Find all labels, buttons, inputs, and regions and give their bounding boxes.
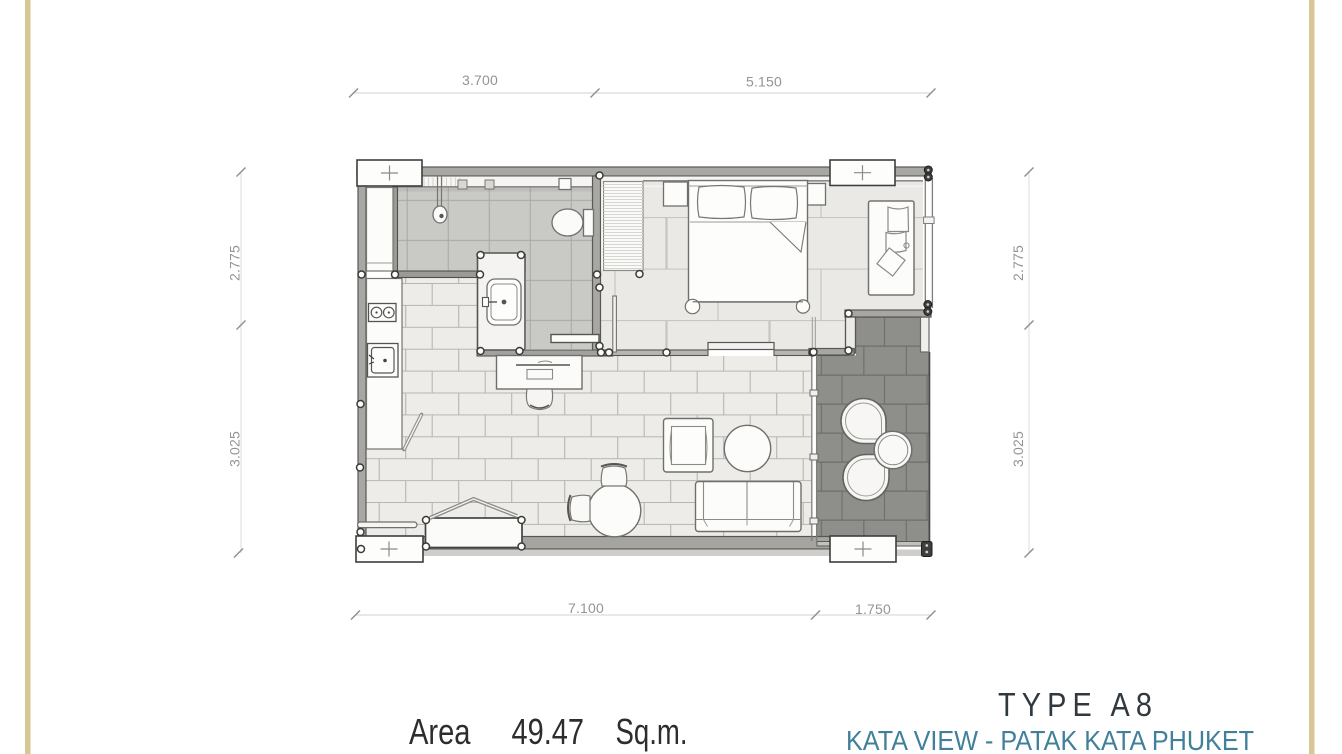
svg-text:Sq.m.: Sq.m. [616, 711, 688, 752]
svg-text:7.100: 7.100 [568, 600, 604, 616]
svg-text:KATA VIEW - PATAK KATA PHUKET: KATA VIEW - PATAK KATA PHUKET [846, 725, 1254, 754]
svg-text:5.150: 5.150 [746, 74, 782, 90]
svg-text:2.775: 2.775 [227, 245, 243, 281]
svg-text:3.700: 3.700 [462, 72, 498, 88]
svg-text:3.025: 3.025 [227, 431, 243, 467]
svg-text:1.750: 1.750 [855, 601, 891, 617]
svg-text:3.025: 3.025 [1010, 431, 1026, 467]
svg-text:Area: Area [409, 711, 471, 752]
svg-text:2.775: 2.775 [1010, 245, 1026, 281]
svg-text:49.47: 49.47 [512, 711, 585, 752]
svg-text:TYPE A8: TYPE A8 [998, 686, 1158, 723]
